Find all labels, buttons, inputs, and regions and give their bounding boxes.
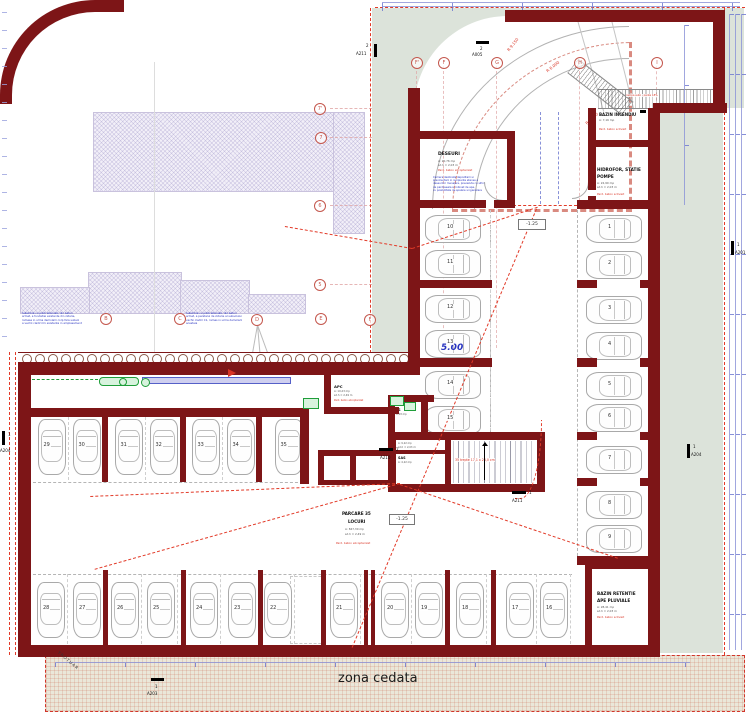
section-marker-num-A204: 1 [693, 444, 696, 449]
entrance-threshold [513, 205, 577, 206]
room-deseuri-height: sd.h = 2,03 m [438, 163, 458, 167]
room-spatiu-comun-height: sd.h = 2,03 m [398, 446, 416, 449]
green-marker-1 [119, 378, 127, 386]
stair-arrow-head [482, 442, 488, 446]
stall-number-4: 4 [607, 341, 612, 347]
green-marker-2 [141, 378, 150, 387]
stall-number-11: 11 [446, 259, 454, 265]
section-marker-sheet-A201: A201 [735, 250, 745, 255]
ramp-label: rampa auto - panta 18% [626, 94, 658, 97]
dim-right-3 [741, 14, 746, 650]
section-marker-sheet-A204: A204 [691, 452, 701, 457]
stall-number-19: 19 [420, 605, 428, 611]
section-marker-bar-A204 [2, 431, 5, 445]
wall-segment-36 [421, 395, 428, 437]
section-marker-bar-A203 [151, 678, 164, 681]
room-bazin-incendiu-label: BAZIN INCENDIU [599, 112, 636, 117]
stall-number-18: 18 [461, 605, 469, 611]
wall-segment-49 [103, 570, 108, 645]
zona-dim-line [55, 662, 690, 667]
wall-segment-56 [491, 570, 496, 645]
room-apc-area: A: 10,23 mp [334, 390, 350, 393]
stall-number-13: 13 [446, 339, 454, 345]
stall-number-22: 22 [269, 605, 277, 611]
wall-segment-4 [408, 88, 420, 366]
grid-bubble-F-01: F [438, 57, 450, 69]
stall-number-24: 24 [195, 605, 203, 611]
section-marker-num-A201: 1 [737, 242, 740, 247]
room-bazin-retentie-height: sd.h = 2,03 m [597, 609, 617, 613]
wall-segment-33 [445, 436, 451, 488]
wall-segment-11 [494, 200, 515, 208]
grid-bubble-F-24: F [364, 314, 376, 326]
wall-segment-15 [577, 200, 660, 209]
grid-bubble-G-02: G [491, 57, 503, 69]
wall-segment-10 [408, 200, 486, 208]
section-marker-num-A203: 1 [155, 684, 158, 689]
stall-number-25: 25 [152, 605, 160, 611]
room-sas2-label: SAS [398, 456, 406, 460]
annotation-subzidire-left: Subzidire cu piloti alternati, din beton… [22, 312, 98, 326]
room-scara-stairs: 35 trepte 17,1 x 28,0 cm [455, 458, 495, 462]
wall-segment-22 [577, 478, 597, 486]
car-glyph-1 [586, 215, 642, 243]
wall-segment-50 [181, 570, 186, 645]
stall-number-23: 23 [233, 605, 241, 611]
car-glyph-2 [586, 251, 642, 279]
wall-segment-28 [408, 358, 492, 367]
wall-segment-5 [18, 362, 420, 375]
stall-number-32: 32 [155, 442, 163, 448]
grid-bubble-D-22: D [251, 314, 263, 326]
conduit-bar [142, 377, 291, 384]
section-marker-bar-A201 [731, 241, 734, 255]
section-marker-sheet-A203: A203 [147, 691, 157, 696]
dim-left [2, 12, 7, 345]
stall-number-10: 10 [446, 224, 454, 230]
section-marker-sheet-A210: A210 [380, 455, 390, 460]
property-line-left-2 [15, 352, 16, 655]
car-glyph-9 [586, 525, 642, 553]
grid-bubble-C-21: C [174, 313, 186, 325]
wall-segment-16 [577, 280, 597, 288]
exit-sign-right [303, 398, 319, 409]
elevation-hall: -1.25 [389, 514, 415, 525]
neighbour-building-2b [180, 280, 250, 314]
room-hidrofor-height: sd.h = 2,03 m [597, 185, 617, 189]
car-glyph-8 [586, 491, 642, 519]
wall-segment-55 [445, 570, 450, 645]
stall-number-6: 6 [607, 413, 612, 419]
section-marker-sheet-A005: A005 [472, 52, 482, 57]
room-hidrofor-label2: POMPE [597, 174, 614, 179]
car-glyph-4 [586, 332, 642, 360]
wall-segment-6 [18, 362, 31, 657]
room-apc-finish: Pard. beton elicopterizat [334, 399, 363, 402]
dim-right-2 [735, 14, 740, 650]
stall-number-31: 31 [120, 442, 128, 448]
grid-bubble-F'-00: F' [411, 57, 423, 69]
dim-5m-label: 5.00 [441, 343, 463, 353]
room-parcare-label2: LOCURI [348, 519, 365, 524]
survey-line [154, 62, 155, 352]
section-marker-bar-A204 [687, 444, 690, 458]
stair-direction-arrow [484, 444, 485, 480]
stall-number-30: 30 [78, 442, 86, 448]
section-marker-sheet-A204: A204 [0, 448, 10, 453]
green-dashed-line [32, 379, 98, 380]
room-apc-height: sd.h = 2,49 m [334, 394, 352, 397]
floor-plan: R 9.150 R 6.000 R 5.100 rampa auto - pan… [0, 0, 753, 716]
wall-segment-14 [588, 140, 656, 147]
wall-segment-1 [713, 10, 725, 110]
room-spatiu-comun-area: A: 9,22 mp [398, 442, 412, 445]
grid-bubble-7'-10: 7' [314, 103, 326, 115]
stall-number-29: 29 [43, 442, 51, 448]
wall-segment-51 [258, 570, 263, 645]
neighbour-building-1b [333, 112, 365, 234]
grid-bubble-5-13: 5 [314, 279, 326, 291]
stall-number-2: 2 [607, 260, 612, 266]
wall-segment-45 [300, 408, 309, 484]
neighbour-building-2d [20, 287, 90, 314]
wall-segment-48 [256, 410, 262, 482]
exit-sign-sas-1 [390, 396, 404, 406]
stall-number-33: 33 [197, 442, 205, 448]
stall-number-1: 1 [607, 224, 612, 230]
wall-segment-27 [408, 280, 492, 288]
stall-number-9: 9 [607, 534, 612, 540]
stall-number-16: 16 [545, 605, 553, 611]
wall-segment-54 [371, 570, 375, 645]
grid-bubble-H-03: H [574, 57, 586, 69]
wall-segment-47 [180, 410, 186, 482]
wall-segment-7 [18, 645, 660, 657]
grid-bubble-7-11: 7 [315, 132, 327, 144]
stall-number-15: 15 [446, 415, 454, 421]
section-marker-num-A211: 2 [366, 43, 369, 48]
section-marker-num-A210: 2 [396, 447, 399, 452]
zona-cedata-label: zona cedata [338, 671, 418, 686]
wall-segment-12 [588, 108, 596, 190]
room-parcare-label: PARCARE 35 [342, 511, 371, 516]
wall-segment-19 [640, 358, 660, 367]
wall-segment-2 [653, 103, 727, 113]
stall-number-26: 26 [116, 605, 124, 611]
wall-segment-21 [640, 432, 660, 440]
property-line-ramp-west [370, 8, 371, 353]
car-glyph-5 [586, 372, 642, 400]
stall-number-14: 14 [446, 380, 454, 386]
exit-sign-sas-2 [404, 402, 416, 411]
room-parcare-area: A: 847,30 mp [345, 527, 364, 531]
wall-segment-37 [393, 450, 448, 454]
stall-number-3: 3 [607, 305, 612, 311]
car-glyph-6 [586, 404, 642, 432]
section-marker-num-A204: 1 [8, 432, 11, 437]
room-sas2-area: A: 4,22 mp [398, 461, 412, 464]
wall-segment-39 [324, 407, 399, 414]
wall-segment-26 [585, 562, 660, 569]
grid-bubble-6-12: 6 [314, 200, 326, 212]
section-marker-bar-A211 [512, 491, 526, 494]
grid-bubble-E-23: E [315, 313, 327, 325]
wall-ramp-curve [0, 0, 124, 104]
wall-segment-23 [640, 478, 660, 486]
grid-bubble-I-04: I [651, 57, 663, 69]
site-zone-right-strip [660, 108, 723, 653]
section-marker-bar-A005 [476, 41, 489, 44]
red-flow-arrow [228, 369, 236, 377]
wall-segment-46 [102, 410, 108, 482]
car-glyph-3 [586, 296, 642, 324]
wall-segment-9 [507, 131, 515, 208]
section-marker-sheet-A211: A211 [356, 51, 366, 56]
neighbour-building-1 [93, 112, 339, 192]
elevation-entry: -1.25 [518, 219, 546, 230]
wall-segment-8 [408, 131, 515, 139]
wall-segment-20 [577, 432, 597, 440]
section-marker-bar-A210 [379, 448, 393, 451]
room-deseuri-finish: Pard. beton elicopterizat [438, 168, 472, 172]
car-glyph-7 [586, 446, 642, 474]
stall-number-27: 27 [78, 605, 86, 611]
section-marker-num-A211: 1 [529, 490, 532, 495]
room-deseuri-label: DESEURI [438, 152, 460, 157]
room-bazin-retentie-label2: APE PLUVIALE [597, 598, 630, 603]
stall-number-7: 7 [607, 455, 612, 461]
wall-segment-18 [577, 358, 597, 367]
section-marker-bar-A211 [374, 44, 377, 57]
property-line-left-1 [9, 352, 10, 655]
wall-segment-3 [648, 108, 660, 657]
wall-segment-25 [585, 562, 592, 652]
section-marker-sheet-A211: A211 [512, 498, 522, 503]
stall-number-35: 35 [280, 442, 288, 448]
dim-right-1 [729, 14, 734, 650]
grid-bubble-B-20: B [100, 313, 112, 325]
stall-number-21: 21 [335, 605, 343, 611]
room-bazin-incendiu-finish: Pard. beton sclivisit [599, 127, 626, 131]
room-parcare-finish: Pard. beton elicopterizat [336, 541, 370, 545]
neighbour-building-2a [88, 272, 182, 314]
stall-number-28: 28 [42, 605, 50, 611]
stall-number-12: 12 [446, 304, 454, 310]
neighbour-building-2c [248, 294, 306, 314]
wall-segment-52 [321, 570, 326, 645]
annotation-subzidire-mid: Subzidire cu piloti alternati, din beton… [186, 312, 248, 326]
room-apc-label: APC [334, 384, 343, 389]
bazin-legend-mark [640, 110, 646, 113]
stall-number-17: 17 [511, 605, 519, 611]
stall-number-5: 5 [607, 381, 612, 387]
room-hidrofor-label: HIDROFOR, STATIE [597, 167, 641, 172]
room-bazin-incendiu-area: A: 7,16 mp [599, 118, 614, 122]
room-parcare-height: sd.h = 2,49 m [345, 532, 365, 536]
stall-number-8: 8 [607, 500, 612, 506]
wall-segment-0 [505, 10, 725, 22]
dim-inner-1 [684, 25, 689, 205]
wall-segment-17 [640, 280, 660, 288]
room-bazin-retentie-label: BAZIN RETENTIE [597, 591, 636, 596]
section-marker-num-A005: 2 [480, 46, 483, 51]
room-hidrofor-finish: Pard. beton sclivisit [597, 192, 624, 196]
stall-number-34: 34 [232, 442, 240, 448]
stall-number-20: 20 [386, 605, 394, 611]
room-bazin-retentie-finish: Pard. beton sclivisit [597, 615, 624, 619]
